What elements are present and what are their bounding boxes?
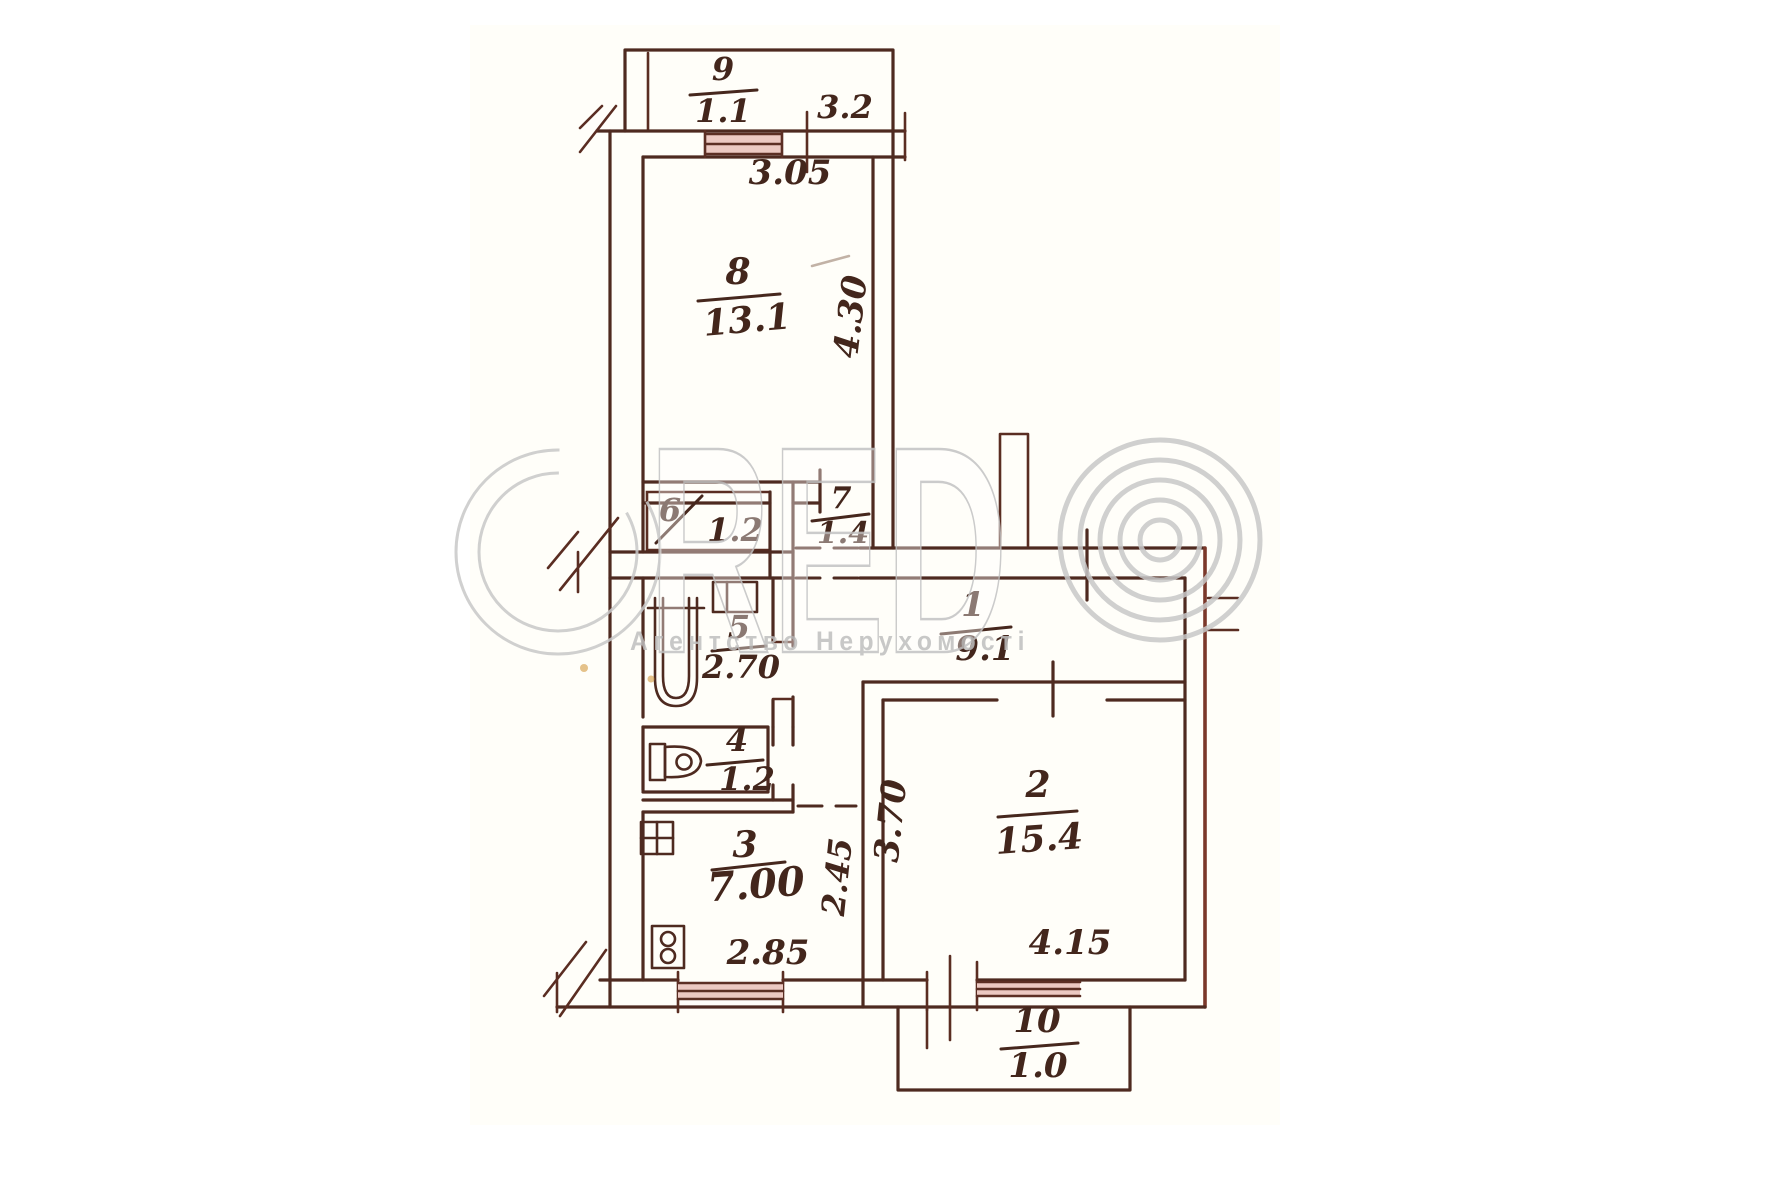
room-4-area: 1.2 bbox=[719, 760, 775, 798]
watermark-subtitle: Агентство Нерухомості bbox=[630, 626, 1030, 656]
room-3-area: 7.00 bbox=[706, 858, 807, 912]
floor-plan-canvas: 9 1.1 8 13.1 6 1.2 7 1.4 1 9.1 5 2.70 4 … bbox=[0, 0, 1772, 1181]
room-9-number: 9 bbox=[712, 50, 734, 88]
floor-plan: 9 1.1 8 13.1 6 1.2 7 1.4 1 9.1 5 2.70 4 … bbox=[0, 0, 1772, 1181]
room-2-area: 15.4 bbox=[994, 815, 1084, 863]
dim-balcony-offset: 3.2 bbox=[817, 88, 873, 126]
dim-kitchen-width: 2.85 bbox=[726, 933, 810, 973]
room-8-area: 13.1 bbox=[701, 295, 792, 344]
room-3-number: 3 bbox=[732, 824, 757, 866]
watermark-brand-text: RED bbox=[648, 385, 1008, 715]
room-8-number: 8 bbox=[724, 251, 750, 293]
dim-room2-width: 4.15 bbox=[1029, 923, 1112, 963]
room-10-number: 10 bbox=[1013, 1001, 1061, 1041]
stain-dot-1 bbox=[580, 664, 588, 672]
room-9-area: 1.1 bbox=[695, 92, 751, 130]
room-4-number: 4 bbox=[726, 721, 748, 759]
room-2-number: 2 bbox=[1024, 764, 1050, 806]
dim-room8-width: 3.05 bbox=[749, 153, 832, 193]
room-10-area: 1.0 bbox=[1008, 1046, 1067, 1086]
